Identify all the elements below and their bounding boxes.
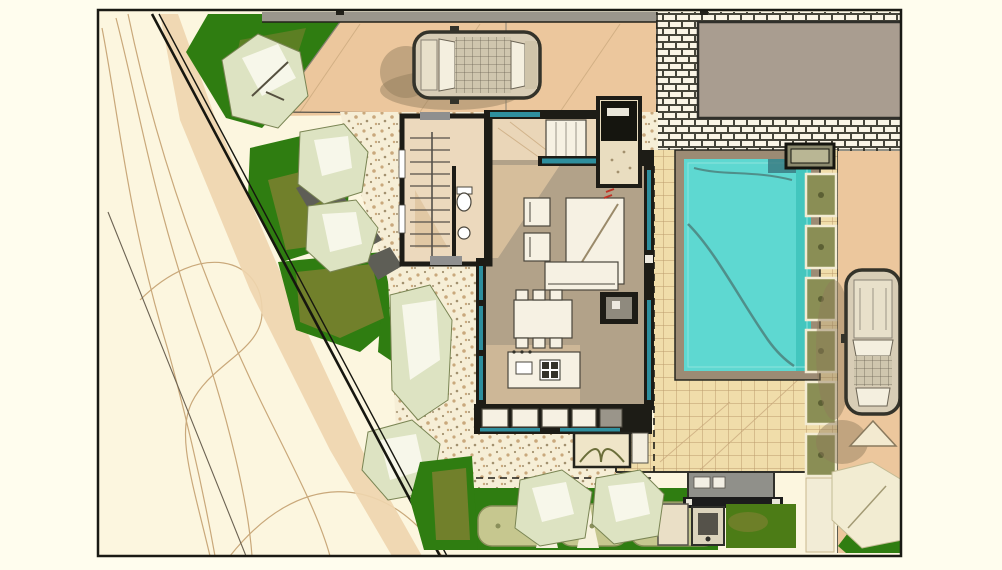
island-sink (516, 362, 532, 374)
chair (516, 338, 528, 348)
stair-bath-wing (399, 112, 490, 265)
cabinet (658, 504, 688, 545)
sofa (545, 262, 618, 290)
chair (550, 338, 562, 348)
car-mirror (450, 97, 459, 104)
street-strip (262, 12, 658, 22)
door (420, 112, 450, 120)
chair (516, 290, 528, 300)
east-glazing (647, 170, 651, 250)
toilet (457, 193, 471, 211)
chair (550, 290, 562, 300)
side-path (806, 478, 834, 552)
entry-glazing (490, 112, 540, 117)
car-mirror (841, 334, 847, 343)
neighbor-building (698, 22, 903, 118)
cooktop (540, 360, 560, 380)
swimming-pool (675, 150, 820, 380)
site-plan (0, 0, 1002, 570)
corner-planter (574, 433, 648, 467)
armchair (524, 198, 550, 226)
car-mirror (450, 26, 459, 33)
armchair (524, 233, 550, 261)
fireplace (600, 292, 638, 324)
entry-vestibule (598, 98, 640, 186)
window (399, 205, 405, 233)
site-plan-drawing (0, 0, 1002, 570)
chair (533, 338, 545, 348)
sink (458, 227, 470, 239)
window (399, 150, 405, 178)
car-east (841, 270, 905, 414)
planter-bench (786, 144, 834, 168)
dining-table (514, 300, 572, 338)
door (430, 256, 462, 265)
north-glazing (542, 159, 596, 164)
chair (533, 290, 545, 300)
